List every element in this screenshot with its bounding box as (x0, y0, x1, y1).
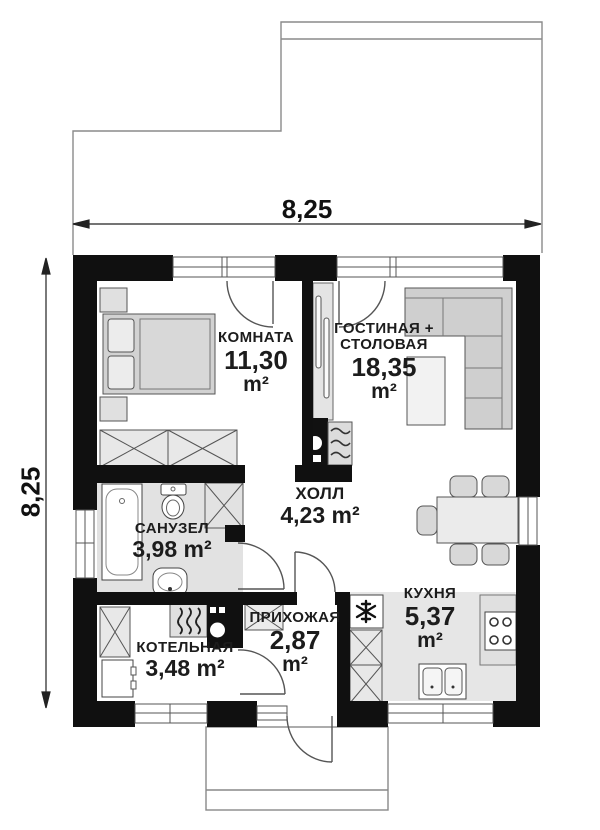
bed-mattress (140, 319, 210, 389)
room-name: САНУЗЕЛ (132, 521, 211, 537)
door-bathroom (238, 543, 284, 589)
room-name: ГОСТИНАЯ + (334, 321, 434, 337)
room-area: 18,35 (334, 353, 434, 381)
door-bedroom-terrace (227, 281, 273, 327)
dining-chair (482, 476, 509, 497)
room-label-prihozhaya: ПРИХОЖАЯ 2,87 m² (249, 610, 340, 677)
pillow (108, 319, 134, 352)
pillow (108, 356, 134, 389)
floor-plan-page: КОМНАТА 11,30 m² ГОСТИНАЯ + СТОЛОВАЯ 18,… (0, 0, 600, 830)
toilet (161, 484, 186, 519)
window-top-bedroom (173, 257, 275, 277)
stove (485, 612, 516, 650)
window-bottom-kitchen (388, 704, 493, 723)
fridge (350, 595, 383, 628)
room-label-kuhnya: КУХНЯ 5,37 m² (404, 586, 456, 653)
floor-plan-drawing (0, 0, 600, 830)
nightstand (100, 397, 127, 421)
dimension-width-label: 8,25 (282, 194, 333, 225)
water-heater (170, 603, 207, 637)
dining-set (417, 476, 518, 565)
room-name: ПРИХОЖАЯ (249, 610, 340, 626)
room-area: 5,37 (404, 602, 456, 630)
room-area-unit: m² (249, 654, 340, 677)
room-area: 4,23 m² (280, 503, 359, 528)
nightstand (100, 288, 127, 312)
door-hallway (295, 552, 335, 592)
room-area: 3,48 m² (136, 656, 233, 681)
window-left-bathroom (76, 510, 94, 578)
dining-chair (417, 506, 437, 535)
window-top-living (337, 257, 503, 277)
dining-chair (450, 476, 477, 497)
bedroom-furniture (100, 288, 237, 467)
room-name: СТОЛОВАЯ (334, 337, 434, 353)
dining-table (437, 497, 518, 543)
room-label-kotelnaya: КОТЕЛЬНАЯ 3,48 m² (136, 640, 233, 681)
sliding-door-handle (316, 296, 321, 368)
kitchen-cabinet (350, 630, 382, 703)
room-name: ХОЛЛ (280, 485, 359, 503)
entrance-porch (206, 727, 388, 810)
room-name: КОТЕЛЬНАЯ (136, 640, 233, 656)
washing-machine (102, 660, 136, 697)
window-right-dining (519, 497, 537, 545)
bathroom-sink (153, 568, 187, 596)
room-label-holl: ХОЛЛ 4,23 m² (280, 485, 359, 528)
window-bottom-boiler (135, 704, 207, 723)
room-label-komnata: КОМНАТА 11,30 m² (218, 330, 294, 397)
room-area: 3,98 m² (132, 537, 211, 562)
window-bottom-entry (257, 706, 287, 720)
room-area-unit: m² (404, 630, 456, 653)
room-area-unit: m² (334, 381, 434, 404)
room-name: КОМНАТА (218, 330, 294, 346)
room-area: 11,30 (218, 346, 294, 374)
wardrobe-bedroom (100, 430, 237, 467)
room-area-unit: m² (218, 374, 294, 397)
room-label-sanuzel: САНУЗЕЛ 3,98 m² (132, 521, 211, 562)
boiler-cabinet (100, 607, 130, 657)
dining-chair (450, 544, 477, 565)
dining-chair (482, 544, 509, 565)
wardrobe-living (313, 283, 333, 420)
room-area: 2,87 (249, 626, 340, 654)
room-name: КУХНЯ (404, 586, 456, 602)
room-label-gostinaya: ГОСТИНАЯ + СТОЛОВАЯ 18,35 m² (334, 321, 434, 404)
dimension-height-label: 8,25 (16, 467, 47, 518)
kitchen-sink (419, 664, 466, 699)
sliding-door-handle (324, 318, 329, 398)
